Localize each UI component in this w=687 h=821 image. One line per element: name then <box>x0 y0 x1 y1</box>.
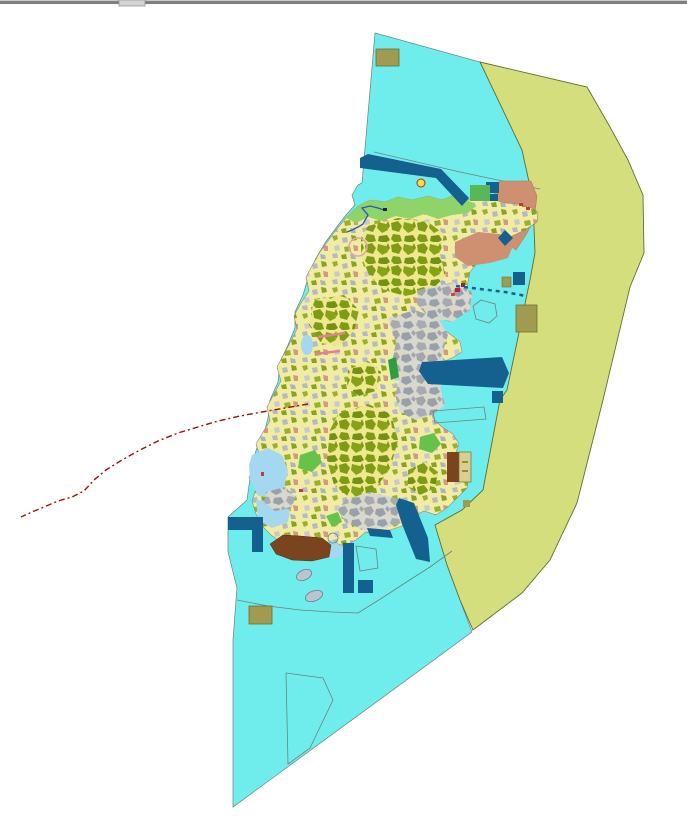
darkblue-band-south <box>343 543 354 593</box>
window-top-border-highlight <box>0 0 687 1</box>
red-speck-5 <box>526 207 530 210</box>
khaki-rect-small <box>502 277 511 287</box>
tidal-flat-west-3 <box>301 335 313 355</box>
window-resize-handle[interactable] <box>119 0 145 6</box>
tan-block-mark-1 <box>462 461 468 463</box>
khaki-rect-bottom <box>249 606 272 624</box>
red-speck-6 <box>261 472 264 476</box>
red-speck-4 <box>519 203 523 206</box>
darkblue-square-5 <box>358 580 373 593</box>
tan-block-east <box>459 452 471 482</box>
map-viewport <box>0 0 687 821</box>
brown-block-east <box>447 452 459 482</box>
darkblue-square-4 <box>492 391 503 403</box>
darkblue-harbor-band <box>419 357 509 388</box>
khaki-rect-top <box>376 49 399 66</box>
window-top-border <box>0 1 687 4</box>
red-speck-3 <box>451 293 455 296</box>
darkblue-square-2 <box>490 194 498 201</box>
khaki-rect-east <box>516 305 537 332</box>
map-canvas[interactable] <box>0 0 687 821</box>
point-marker-yellow <box>417 179 425 187</box>
khaki-dot <box>463 500 470 507</box>
stream-mouth-dot <box>383 208 387 211</box>
green-rect-ne <box>470 185 490 201</box>
darkblue-square-3 <box>513 272 525 285</box>
tan-block-mark-2 <box>462 470 468 472</box>
red-speck-1 <box>455 288 460 292</box>
red-speck-7 <box>299 489 303 492</box>
